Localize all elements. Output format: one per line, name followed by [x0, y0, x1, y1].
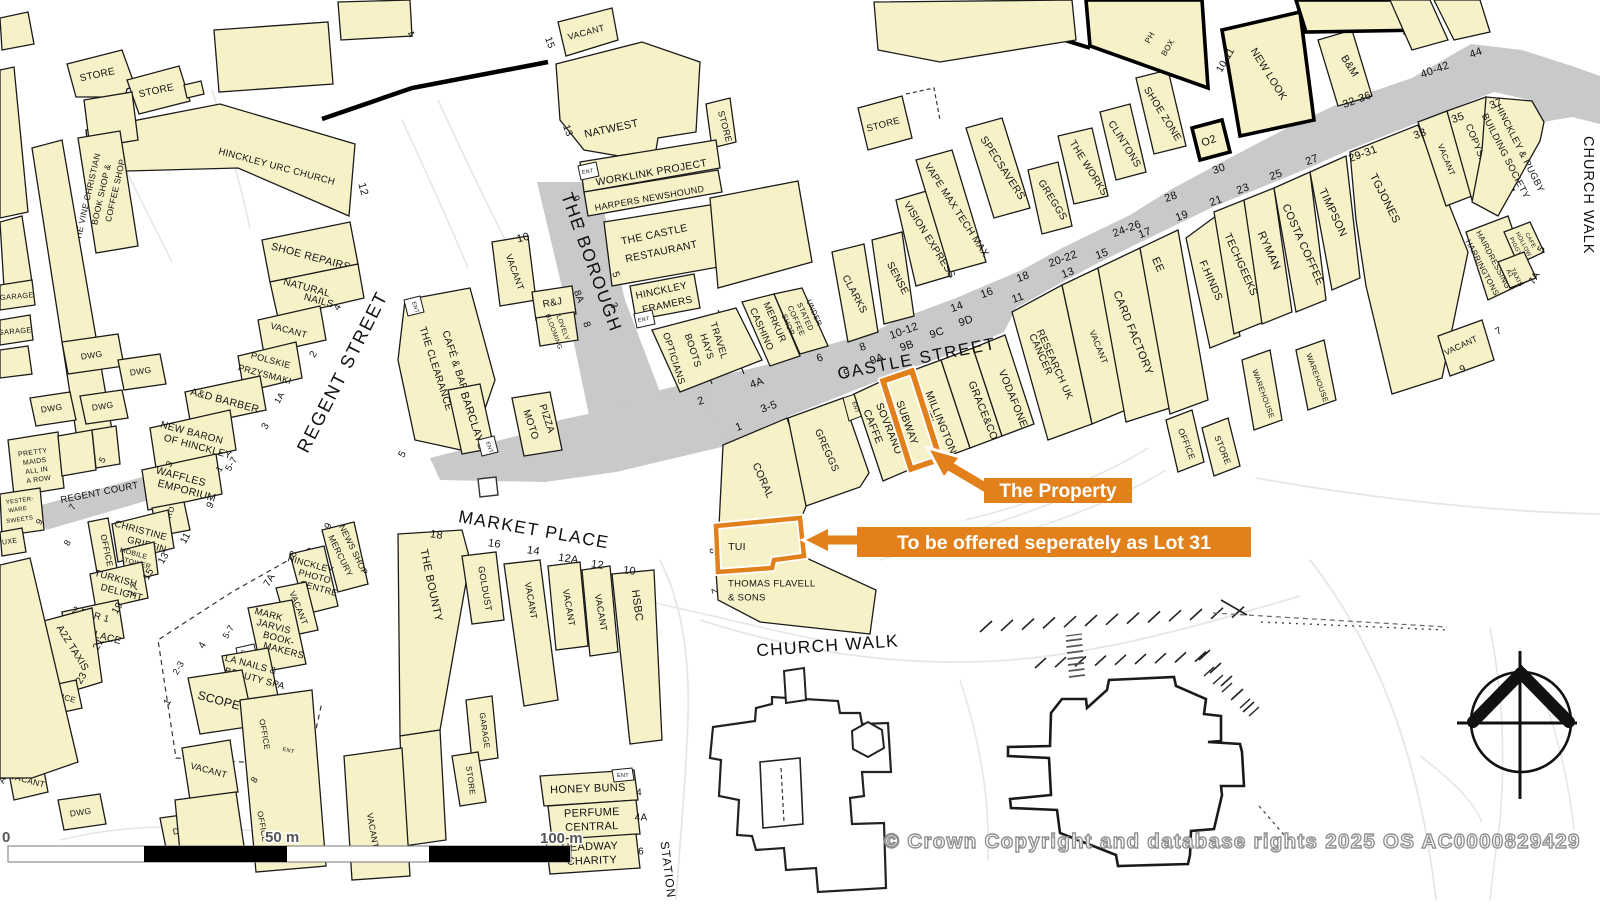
svg-text:14: 14 [526, 544, 540, 558]
svg-text:4: 4 [636, 788, 642, 799]
svg-text:& SONS: & SONS [728, 592, 766, 603]
svg-text:ENT: ENT [617, 773, 629, 779]
svg-text:PERFUME: PERFUME [564, 806, 620, 820]
svg-text:4A: 4A [635, 813, 648, 824]
svg-text:THOMAS FLAVELL: THOMAS FLAVELL [728, 578, 815, 589]
svg-text:CHURCH WALK: CHURCH WALK [1580, 136, 1596, 254]
svg-text:TUI: TUI [728, 541, 746, 553]
svg-text:© Crown Copyright and database: © Crown Copyright and database rights 20… [884, 830, 1580, 853]
svg-text:0: 0 [2, 829, 10, 846]
svg-text:To be offered seperately as Lo: To be offered seperately as Lot 31 [897, 532, 1211, 554]
svg-text:16: 16 [487, 537, 501, 551]
svg-text:CHARITY: CHARITY [567, 854, 618, 868]
svg-text:6: 6 [638, 847, 644, 858]
svg-text:100 m: 100 m [540, 830, 583, 847]
svg-text:10: 10 [622, 564, 636, 578]
svg-text:12: 12 [590, 558, 604, 572]
svg-text:50 m: 50 m [265, 829, 299, 846]
svg-text:18: 18 [429, 528, 443, 542]
svg-text:The Property: The Property [999, 481, 1117, 502]
